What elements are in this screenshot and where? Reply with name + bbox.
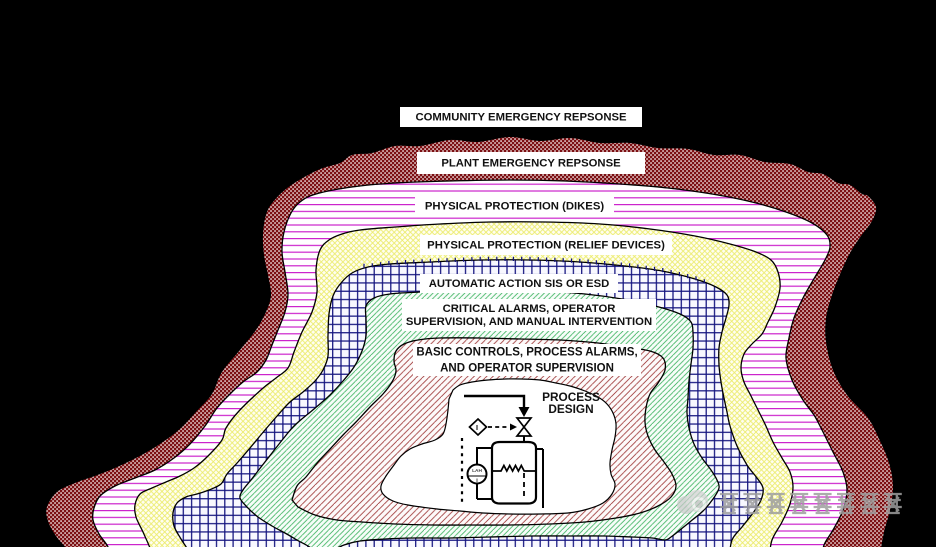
svg-text:PHYSICAL PROTECTION (DIKES): PHYSICAL PROTECTION (DIKES) [425,201,605,213]
svg-text:BASIC CONTROLS, PROCESS ALARMS: BASIC CONTROLS, PROCESS ALARMS, [416,347,637,359]
svg-text:PLANT EMERGENCY REPSONSE: PLANT EMERGENCY REPSONSE [441,158,621,170]
svg-text:PHYSICAL PROTECTION (RELIEF DE: PHYSICAL PROTECTION (RELIEF DEVICES) [427,240,665,252]
svg-text:AND OPERATOR SUPERVISION: AND OPERATOR SUPERVISION [440,363,614,375]
svg-text:SUPERVISION, AND MANUAL INTERV: SUPERVISION, AND MANUAL INTERVENTION [406,316,652,328]
svg-text:DESIGN: DESIGN [548,402,593,416]
svg-text:LAH: LAH [472,468,482,474]
svg-text:COMMUNITY EMERGENCY REPSONSE: COMMUNITY EMERGENCY REPSONSE [415,112,627,124]
svg-text:CRITICAL ALARMS, OPERATOR: CRITICAL ALARMS, OPERATOR [443,303,616,315]
svg-text:AUTOMATIC ACTION SIS OR ESD: AUTOMATIC ACTION SIS OR ESD [429,278,610,290]
